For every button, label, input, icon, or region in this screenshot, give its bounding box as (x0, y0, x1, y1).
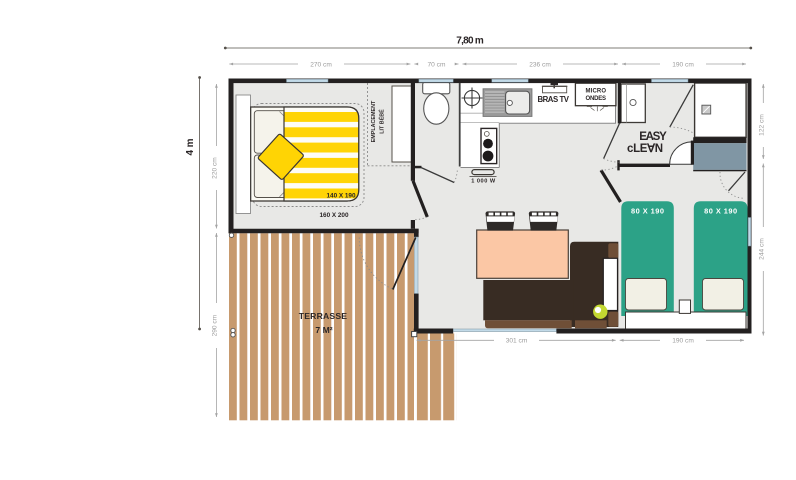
svg-text:160 X 200: 160 X 200 (320, 212, 349, 219)
svg-text:80 X 190: 80 X 190 (631, 207, 664, 216)
svg-text:290 cm: 290 cm (211, 314, 218, 336)
svg-text:244 cm: 244 cm (758, 238, 765, 260)
svg-text:80 X 190: 80 X 190 (704, 207, 737, 216)
svg-text:220 cm: 220 cm (211, 157, 218, 179)
svg-text:1 000 W: 1 000 W (471, 179, 496, 185)
svg-text:7,80 m: 7,80 m (456, 36, 484, 47)
svg-text:190 cm: 190 cm (672, 338, 694, 345)
svg-text:LIT BÉBÉ: LIT BÉBÉ (377, 109, 385, 134)
svg-text:TERRASSE: TERRASSE (299, 311, 347, 321)
svg-text:EASY: EASY (639, 131, 667, 143)
svg-text:140 X 190: 140 X 190 (327, 192, 356, 199)
svg-text:BRAS TV: BRAS TV (537, 95, 569, 104)
svg-text:70 cm: 70 cm (428, 61, 446, 68)
svg-text:ONDES: ONDES (586, 96, 607, 102)
svg-text:MICRO: MICRO (586, 89, 607, 95)
svg-text:122 cm: 122 cm (758, 114, 765, 136)
svg-text:cLE∀N: cLE∀N (627, 143, 663, 155)
svg-text:301 cm: 301 cm (506, 338, 528, 345)
svg-text:EMPLACEMENT: EMPLACEMENT (371, 100, 377, 142)
svg-text:270 cm: 270 cm (310, 61, 332, 68)
svg-text:7 M²: 7 M² (315, 325, 332, 335)
svg-text:190 cm: 190 cm (672, 61, 694, 68)
svg-text:4 m: 4 m (185, 138, 196, 155)
svg-text:236 cm: 236 cm (529, 61, 551, 68)
